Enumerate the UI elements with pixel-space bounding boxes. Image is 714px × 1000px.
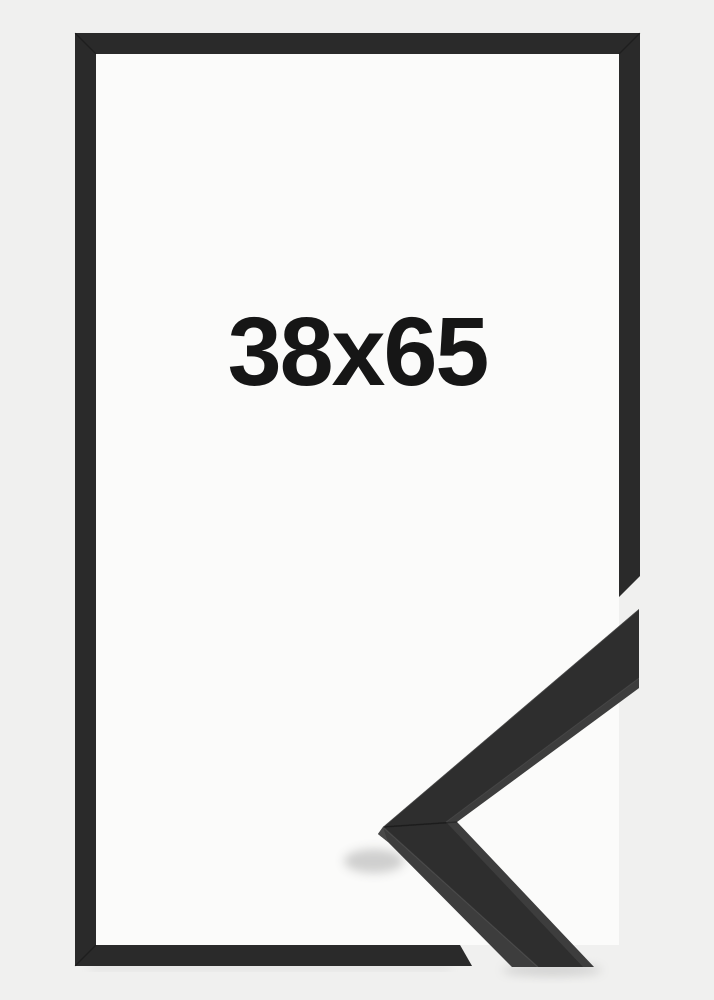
mat-area bbox=[96, 54, 619, 945]
frame-product-photo: 38x65 bbox=[0, 0, 714, 1000]
frame-bar-bottom bbox=[75, 945, 472, 966]
frame-illustration bbox=[0, 0, 714, 1000]
frame-bar-top bbox=[75, 33, 640, 54]
frame-bar-left bbox=[75, 33, 96, 966]
size-label: 38x65 bbox=[96, 303, 619, 400]
sample-tip-shadow bbox=[344, 849, 404, 873]
frame-bar-right bbox=[619, 33, 640, 597]
